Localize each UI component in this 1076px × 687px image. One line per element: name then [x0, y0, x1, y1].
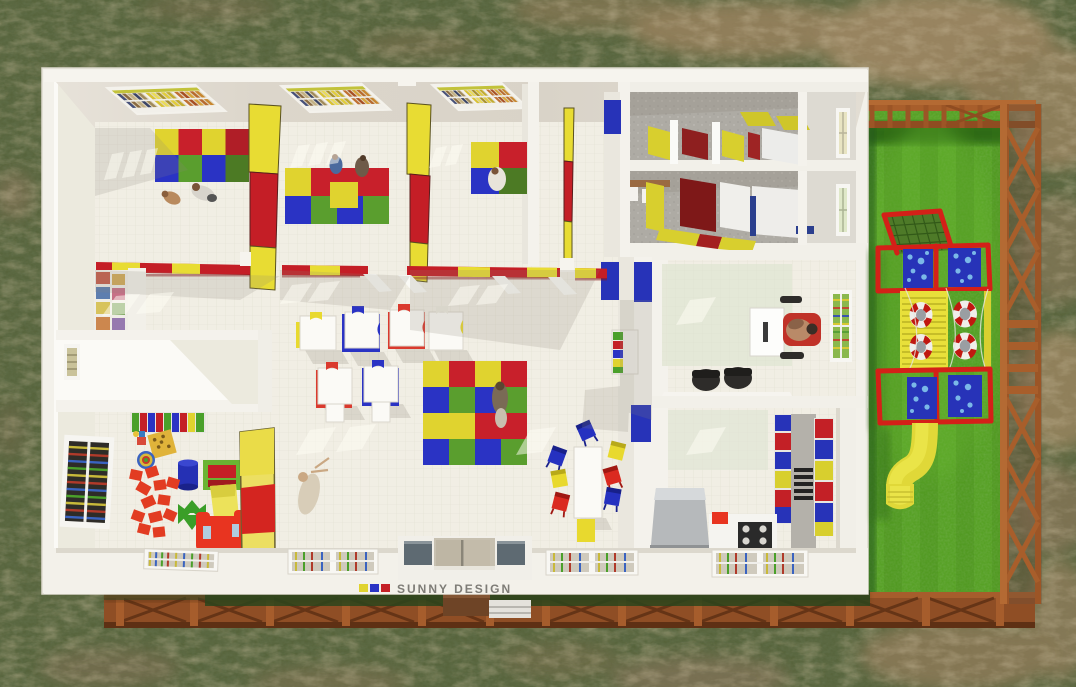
svg-text:SUNNY DESIGN: SUNNY DESIGN: [397, 582, 512, 596]
